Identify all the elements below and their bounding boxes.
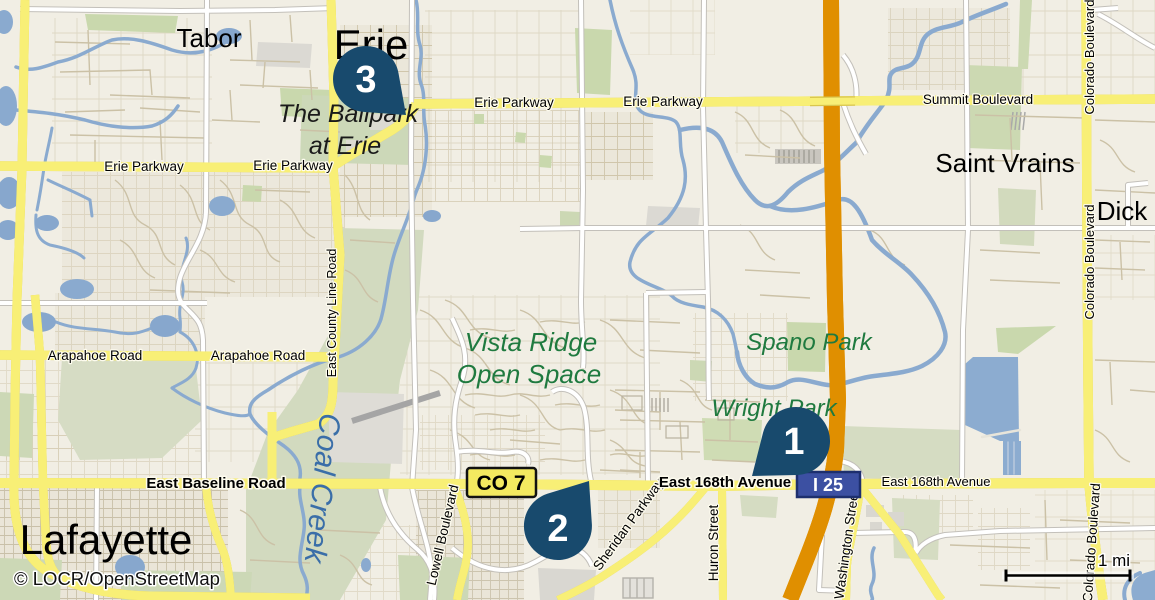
svg-text:1 mi: 1 mi [1098, 551, 1130, 570]
svg-text:2: 2 [547, 508, 568, 550]
svg-text:Colorado Boulevard: Colorado Boulevard [1082, 205, 1097, 320]
svg-text:Arapahoe Road: Arapahoe Road [211, 348, 306, 363]
svg-text:Erie Parkway: Erie Parkway [104, 159, 184, 174]
svg-text:Dick: Dick [1097, 196, 1149, 226]
svg-text:Tabor: Tabor [176, 23, 241, 53]
svg-text:East 168th Avenue: East 168th Avenue [882, 474, 991, 489]
svg-text:East Baseline Road: East Baseline Road [146, 475, 285, 492]
svg-text:CO 7: CO 7 [476, 472, 525, 495]
svg-text:Erie Parkway: Erie Parkway [474, 95, 554, 110]
svg-text:Vista Ridge: Vista Ridge [465, 327, 598, 357]
svg-text:Summit Boulevard: Summit Boulevard [923, 92, 1033, 107]
svg-text:I 25: I 25 [813, 475, 843, 495]
svg-text:© LOCR/OpenStreetMap: © LOCR/OpenStreetMap [14, 568, 220, 589]
svg-text:Huron Street: Huron Street [706, 504, 721, 581]
svg-text:Arapahoe Road: Arapahoe Road [48, 348, 143, 363]
svg-text:Erie Parkway: Erie Parkway [253, 158, 333, 173]
svg-text:Lafayette: Lafayette [20, 516, 193, 563]
svg-text:East County Line Road: East County Line Road [325, 249, 339, 378]
svg-text:Erie Parkway: Erie Parkway [623, 94, 703, 109]
svg-text:Saint Vrains: Saint Vrains [935, 148, 1074, 178]
svg-text:Spano Park: Spano Park [746, 329, 873, 356]
svg-text:1: 1 [783, 421, 804, 463]
svg-text:3: 3 [355, 59, 376, 101]
svg-text:East 168th Avenue: East 168th Avenue [659, 474, 791, 491]
svg-text:Colorado Boulevard: Colorado Boulevard [1082, 0, 1097, 114]
svg-text:Open Space: Open Space [457, 359, 602, 389]
svg-text:at Erie: at Erie [309, 132, 381, 160]
